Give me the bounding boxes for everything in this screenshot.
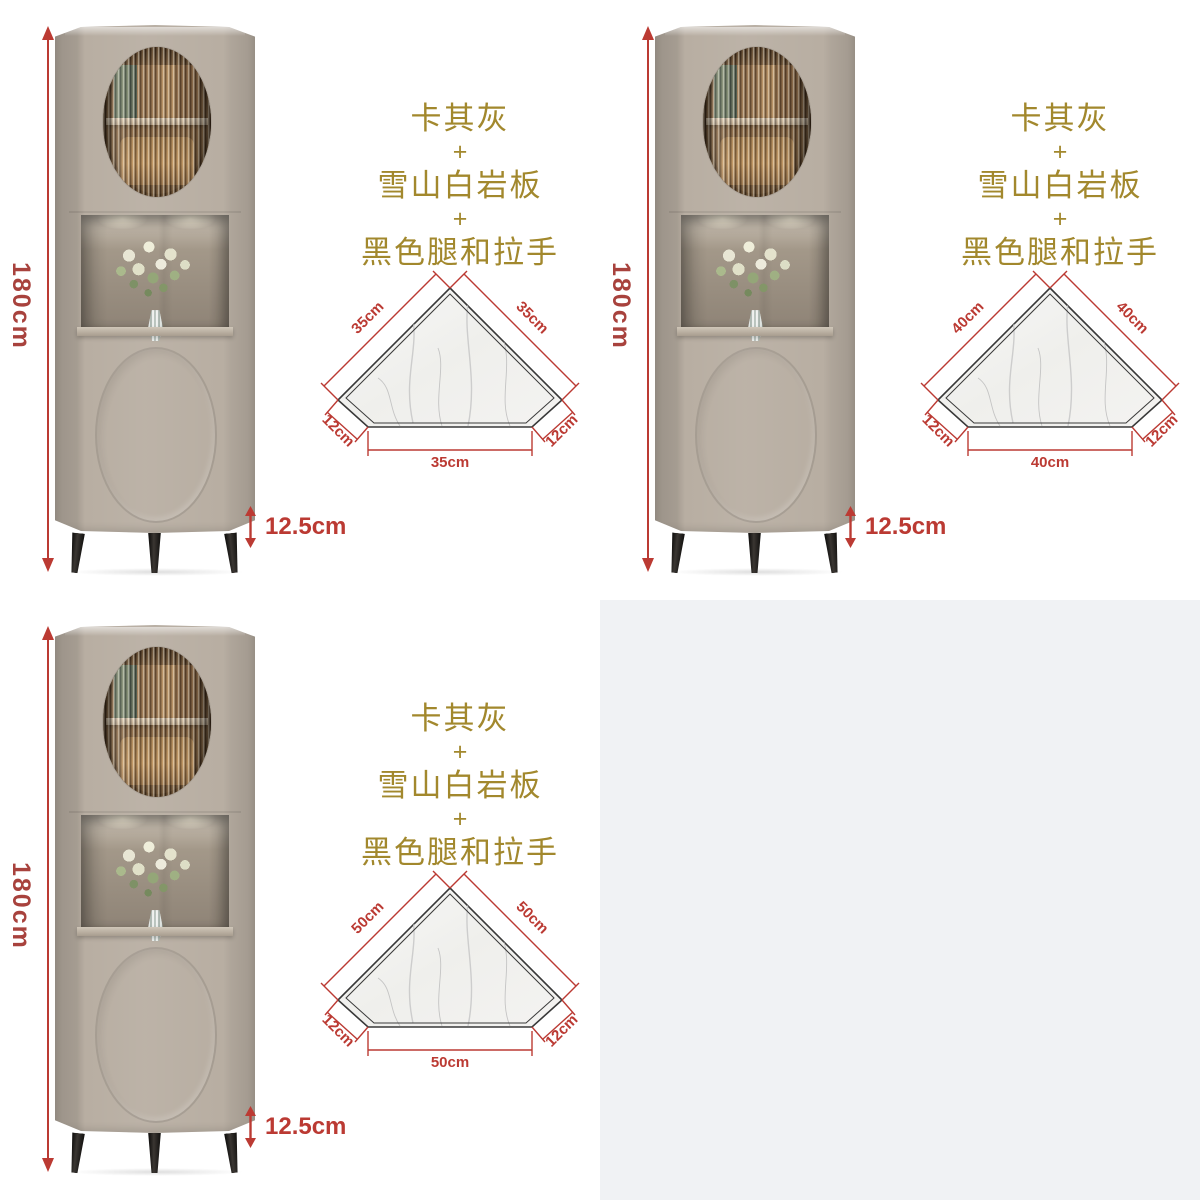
finish-description: 卡其灰 + 雪山白岩板 + 黑色腿和拉手 [935,100,1185,271]
cabinet-body [55,625,255,1133]
cabinet-leg-center [147,1133,162,1173]
cabinet-leg-center [747,533,762,573]
dim-left-edge: 50cm [348,898,387,937]
finish-slab-name: 雪山白岩板 [335,767,585,804]
plus-sign: + [335,804,585,834]
cabinet-body [655,25,855,533]
height-dimension-arrow [640,26,656,572]
fluted-glass-texture [103,47,211,197]
dim-left-cut: 12cm [319,411,358,450]
height-label: 180cm [6,862,35,950]
dim-left-edge: 35cm [348,298,387,337]
leg-height-arrow [244,1106,257,1148]
corner-cabinet-photo [655,25,855,573]
cabinet-leg-center [147,533,162,573]
corner-cabinet-photo [55,625,255,1173]
flower-vase [148,310,163,341]
dim-right-edge: 35cm [513,298,552,337]
cabinet-body [55,25,255,533]
dim-right-edge: 40cm [1113,298,1152,337]
fluted-glass-door [703,47,811,197]
finish-color-name: 卡其灰 [335,100,585,137]
plus-sign: + [935,137,1185,167]
niche-shelf-edge [677,327,833,336]
lower-door-oval-panel [95,347,217,523]
dim-bottom-edge: 50cm [431,1054,469,1071]
display-niche [681,215,829,331]
leg-height-label: 12.5cm [265,1113,346,1141]
flower-bouquet [713,237,793,299]
leg-height-label: 12.5cm [865,513,946,541]
dim-bottom-edge: 40cm [1031,454,1069,471]
finish-color-name: 卡其灰 [935,100,1185,137]
lower-door-oval-panel [695,347,817,523]
leg-height-label: 12.5cm [265,513,346,541]
niche-shelf-edge [77,927,233,936]
leg-height-dimension: 12.5cm [244,1106,346,1148]
dim-right-edge: 50cm [513,898,552,937]
dim-right-cut: 12cm [542,1011,581,1050]
display-niche [81,215,229,331]
leg-height-dimension: 12.5cm [244,506,346,548]
product-variant-panel-40: 180cm 12.5cm 卡其灰 + 雪山白岩板 + 黑色腿和拉手 [600,0,1200,600]
plus-sign: + [935,204,1185,234]
dim-bottom-edge: 35cm [431,454,469,471]
display-niche [81,815,229,931]
leg-height-arrow [844,506,857,548]
finish-description: 卡其灰 + 雪山白岩板 + 黑色腿和拉手 [335,700,585,871]
fluted-glass-texture [703,47,811,197]
top-view-diagram: 35cm 35cm 12cm 12cm 35cm [318,258,598,472]
dim-left-edge: 40cm [948,298,987,337]
plus-sign: + [335,737,585,767]
height-dimension-arrow [40,26,56,572]
dim-left-cut: 12cm [919,411,958,450]
fluted-glass-door [103,647,211,797]
flower-vase [148,910,163,941]
flower-bouquet [113,837,193,899]
leg-height-dimension: 12.5cm [844,506,946,548]
fluted-glass-texture [103,647,211,797]
top-view-diagram: 50cm 50cm 12cm 12cm 50cm [318,858,598,1072]
dim-left-cut: 12cm [319,1011,358,1050]
flower-vase [748,310,763,341]
leg-height-arrow [244,506,257,548]
plus-sign: + [335,204,585,234]
plus-sign: + [335,137,585,167]
finish-slab-name: 雪山白岩板 [335,167,585,204]
dim-right-cut: 12cm [542,411,581,450]
corner-cabinet-photo [55,25,255,573]
dim-right-cut: 12cm [1142,411,1181,450]
empty-area [600,600,1200,1200]
lower-door-oval-panel [95,947,217,1123]
finish-color-name: 卡其灰 [335,700,585,737]
fluted-glass-door [103,47,211,197]
finish-slab-name: 雪山白岩板 [935,167,1185,204]
height-label: 180cm [6,262,35,350]
top-view-diagram: 40cm 40cm 12cm 12cm 40cm [918,258,1198,472]
product-variant-panel-50: 180cm 12.5cm 卡其灰 + 雪山白岩板 + 黑色腿和拉手 [0,600,600,1200]
finish-description: 卡其灰 + 雪山白岩板 + 黑色腿和拉手 [335,100,585,271]
height-dimension-arrow [40,626,56,1172]
height-label: 180cm [606,262,635,350]
flower-bouquet [113,237,193,299]
product-variant-panel-35: 180cm 12.5cm 卡其灰 + 雪山白岩板 + 黑色腿和拉手 [0,0,600,600]
niche-shelf-edge [77,327,233,336]
